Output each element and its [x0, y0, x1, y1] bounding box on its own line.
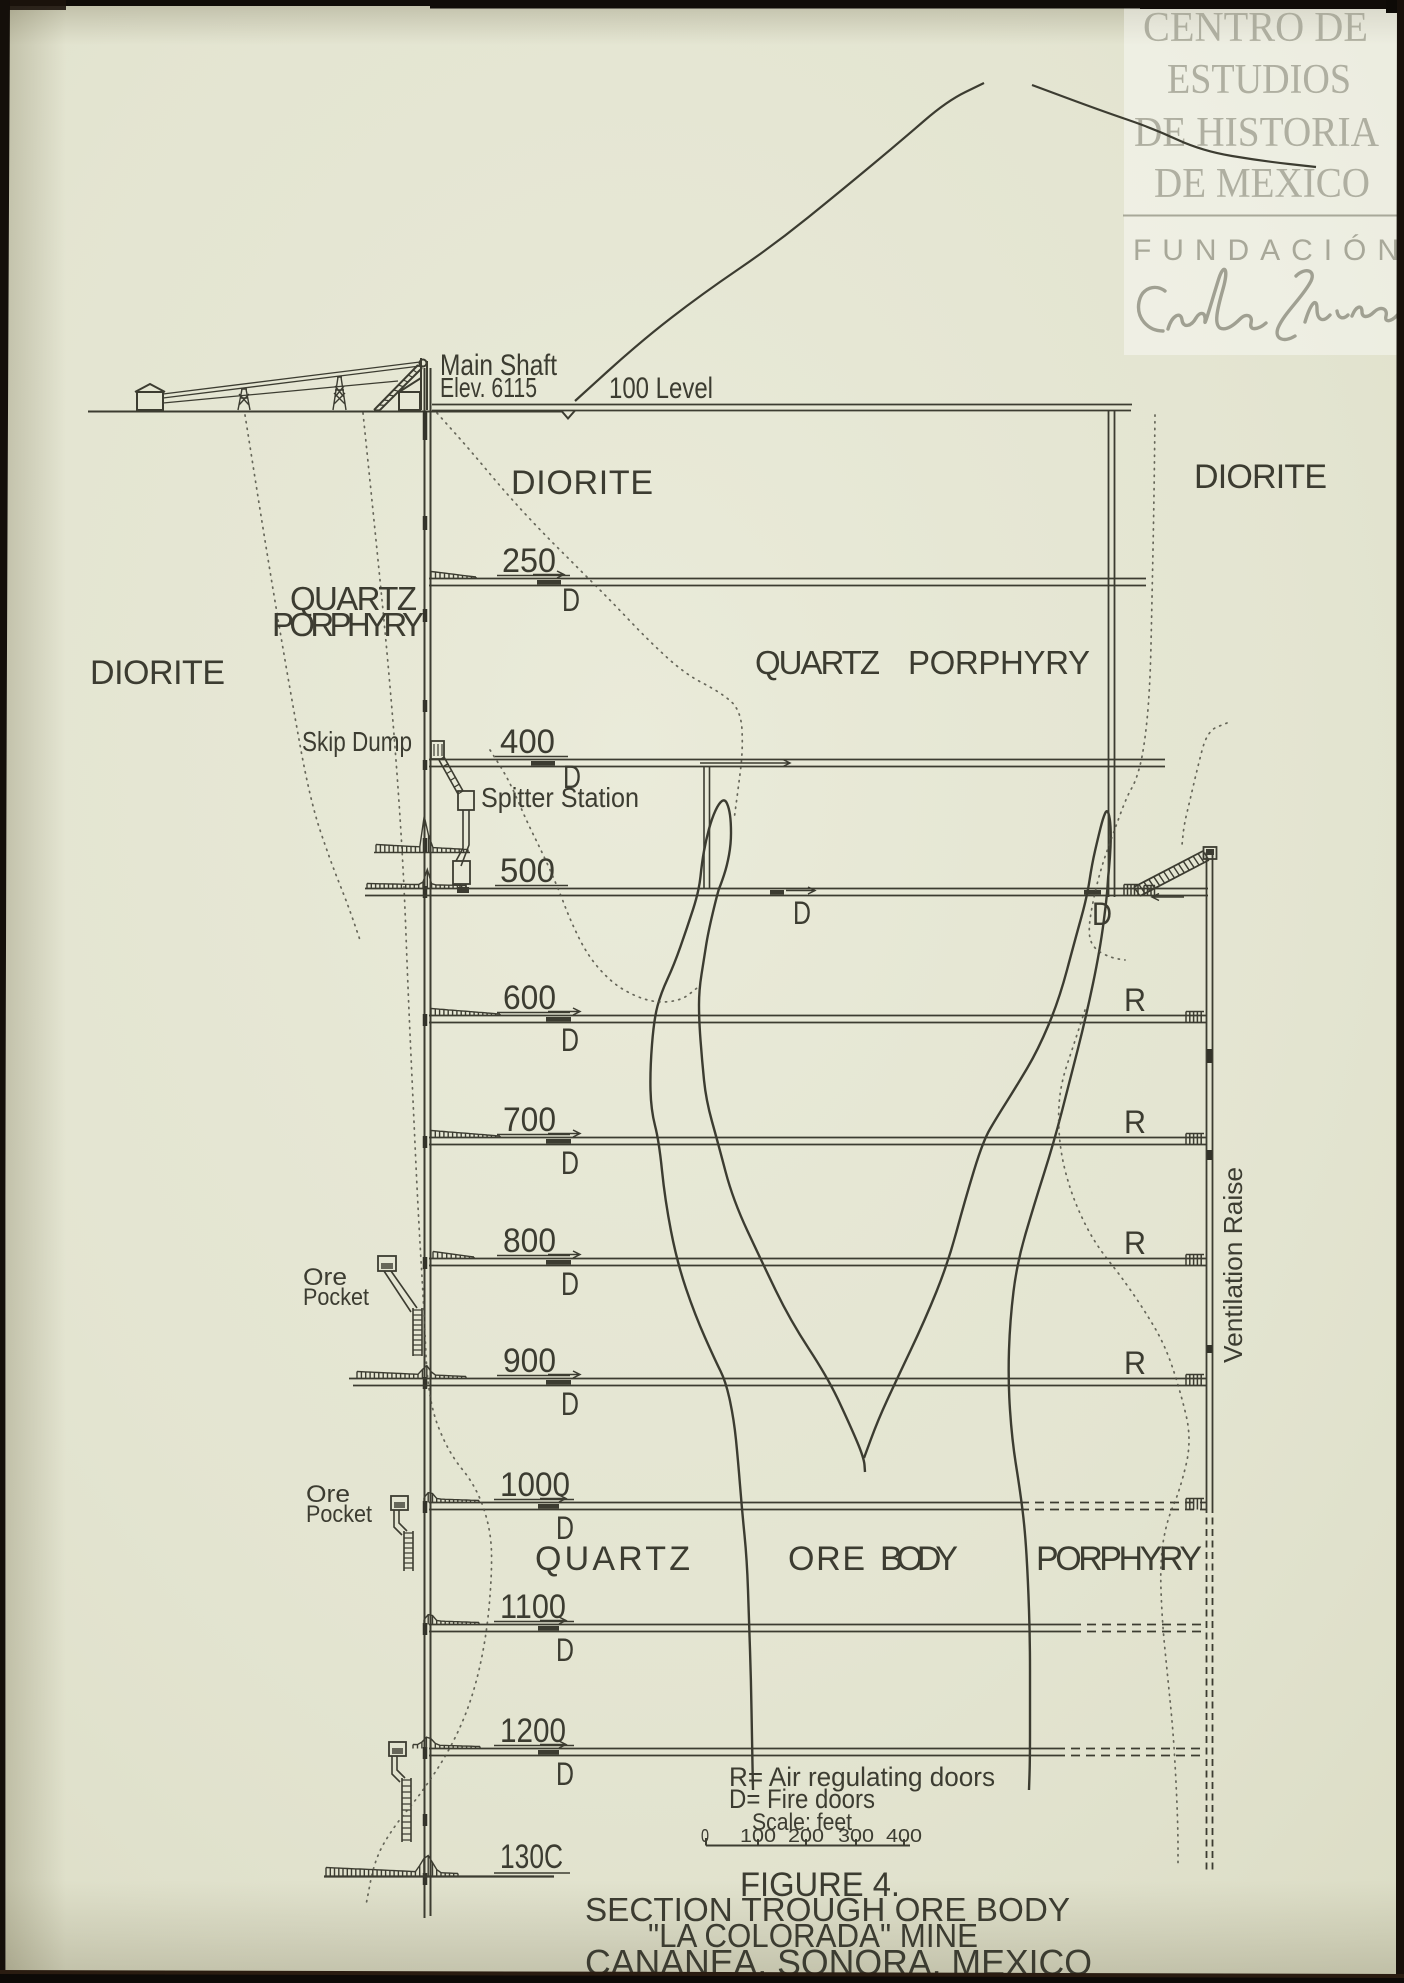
svg-text:PORPHYRY: PORPHYRY: [272, 606, 424, 643]
svg-text:130C: 130C: [500, 1838, 563, 1876]
svg-text:Spitter Station: Spitter Station: [481, 782, 639, 813]
svg-text:400: 400: [886, 1826, 922, 1846]
svg-text:200: 200: [788, 1826, 824, 1846]
svg-text:R: R: [1124, 1225, 1146, 1261]
svg-text:0: 0: [701, 1826, 709, 1846]
svg-text:D: D: [793, 895, 811, 931]
svg-text:Ventilation Raise: Ventilation Raise: [1218, 1167, 1248, 1363]
svg-text:DIORITE: DIORITE: [1194, 458, 1327, 496]
svg-text:DE HISTORIA: DE HISTORIA: [1134, 110, 1380, 156]
svg-text:PORPHYRY: PORPHYRY: [1036, 1540, 1202, 1578]
svg-text:400: 400: [500, 723, 555, 761]
svg-text:DIORITE: DIORITE: [90, 654, 225, 692]
svg-text:R: R: [1124, 1345, 1146, 1381]
svg-text:D: D: [556, 1632, 574, 1668]
svg-text:DE MEXICO: DE MEXICO: [1154, 161, 1370, 207]
svg-text:100 Level: 100 Level: [609, 372, 713, 405]
svg-text:ESTUDIOS: ESTUDIOS: [1167, 57, 1351, 103]
svg-text:D: D: [561, 1266, 579, 1302]
svg-text:FUNDACIÓN: FUNDACIÓN: [1133, 234, 1399, 267]
svg-text:Pocket: Pocket: [306, 1501, 372, 1528]
svg-text:Elev. 6115: Elev. 6115: [440, 372, 537, 403]
svg-text:D: D: [561, 1386, 579, 1422]
svg-text:D: D: [562, 582, 580, 618]
svg-text:Skip Dump: Skip Dump: [302, 726, 412, 757]
svg-text:Pocket: Pocket: [303, 1284, 369, 1311]
svg-text:QUARTZ: QUARTZ: [755, 644, 880, 681]
svg-text:R: R: [1124, 1104, 1146, 1140]
svg-text:DIORITE: DIORITE: [511, 464, 653, 502]
svg-text:D: D: [556, 1756, 574, 1792]
svg-text:CENTRO DE: CENTRO DE: [1143, 5, 1368, 51]
svg-text:300: 300: [838, 1826, 874, 1846]
svg-text:D: D: [561, 1022, 579, 1058]
svg-text:R: R: [1124, 982, 1146, 1018]
svg-text:BODY: BODY: [880, 1540, 958, 1578]
svg-text:D: D: [561, 1145, 579, 1181]
svg-text:100: 100: [740, 1826, 776, 1846]
svg-text:PORPHYRY: PORPHYRY: [908, 644, 1090, 681]
svg-text:ORE: ORE: [788, 1540, 865, 1578]
svg-text:500: 500: [500, 852, 555, 890]
